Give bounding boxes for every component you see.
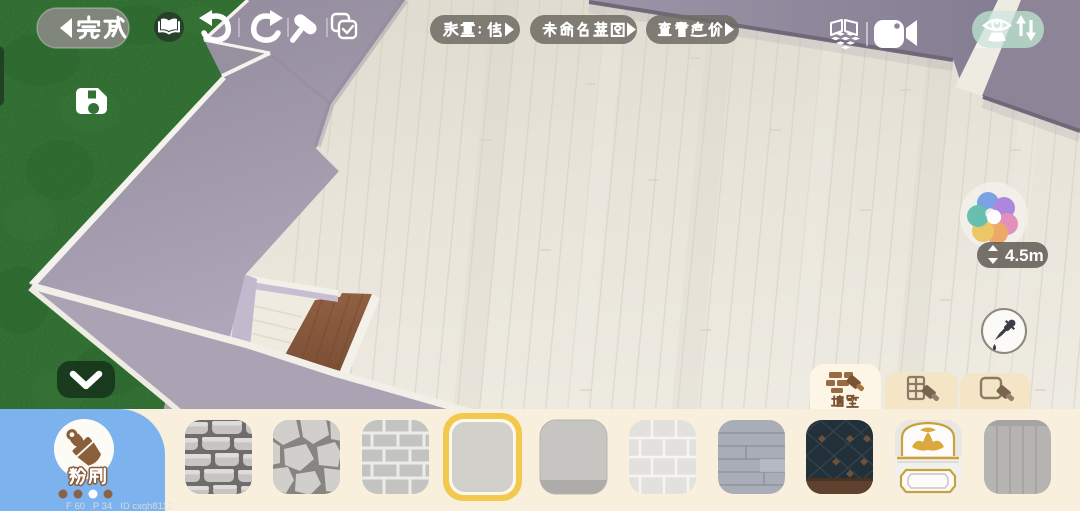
svg-text:4.5m: 4.5m [1005, 246, 1044, 265]
svg-text:F 60 P 34 ID cxqh8112: F 60 P 34 ID cxqh8112 [66, 501, 173, 511]
